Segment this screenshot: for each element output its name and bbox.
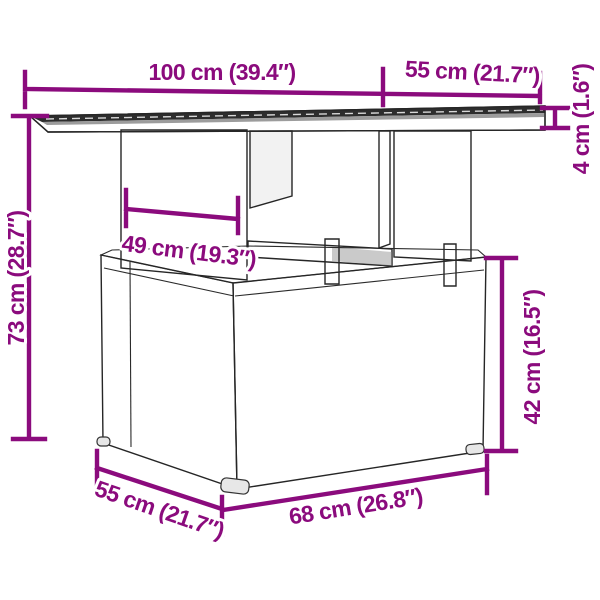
dim-footstool-width: 68 cm (26.8″) — [223, 456, 487, 529]
dim-label-tabletop-width: 100 cm (39.4″) — [148, 59, 295, 85]
rear-post-right — [444, 244, 456, 286]
footstool — [97, 246, 486, 495]
dim-label-table-height: 73 cm (28.7″) — [3, 211, 29, 346]
dim-leg-panel-width: 49 cm (19.3″) — [120, 190, 257, 272]
dim-label-leg-panel-width: 49 cm (19.3″) — [120, 230, 257, 272]
dim-footstool-depth: 55 cm (21.7″) — [92, 451, 228, 544]
footstool-front-foot — [220, 477, 249, 494]
dim-label-footstool-depth: 55 cm (21.7″) — [92, 475, 228, 544]
dimension-annotations: 100 cm (39.4″) 55 cm (21.7″) 4 cm (1.6″)… — [3, 55, 594, 543]
dim-tabletop-depth: 55 cm (21.7″) — [404, 55, 540, 88]
dim-label-footstool-height: 42 cm (16.5″) — [519, 290, 545, 425]
dim-label-tabletop-thickness: 4 cm (1.6″) — [568, 64, 594, 175]
diagram-canvas: 100 cm (39.4″) 55 cm (21.7″) 4 cm (1.6″)… — [0, 0, 600, 600]
dim-label-tabletop-depth: 55 cm (21.7″) — [404, 55, 540, 88]
table-right-leg-panel — [394, 131, 471, 261]
tabletop — [30, 106, 545, 132]
table-right-leg-side — [379, 131, 390, 248]
footstool-right-foot — [466, 443, 485, 455]
footstool-left-face — [101, 255, 237, 489]
dim-footstool-height: 42 cm (16.5″) — [486, 258, 545, 451]
dimension-diagram: 100 cm (39.4″) 55 cm (21.7″) 4 cm (1.6″)… — [0, 0, 600, 600]
table-drawing — [30, 106, 545, 495]
dim-tabletop-thickness: 4 cm (1.6″) — [542, 64, 594, 175]
dim-table-height: 73 cm (28.7″) — [3, 116, 47, 439]
footstool-left-foot — [97, 437, 110, 446]
